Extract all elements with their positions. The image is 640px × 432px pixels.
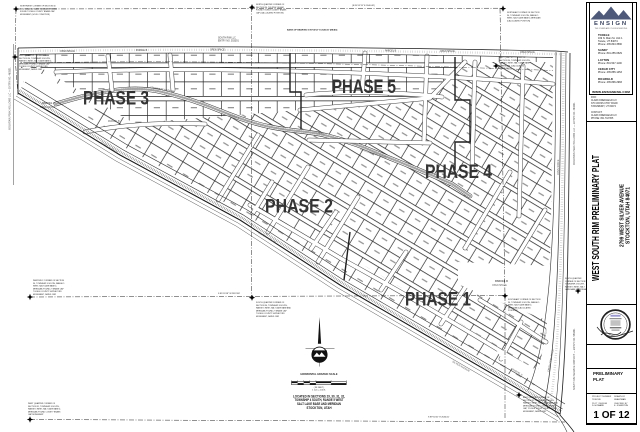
svg-text:FOUND TOOELE COUNTY BRASS: FOUND TOOELE COUNTY BRASS bbox=[256, 9, 287, 12]
svg-text:MOUNTAIN PEAK HOLLOWS LLC — EN: MOUNTAIN PEAK HOLLOWS LLC — ENTRY NO. 46… bbox=[9, 67, 12, 130]
svg-text:SOUTH RIM LLC: SOUTH RIM LLC bbox=[218, 38, 236, 40]
svg-text:MOUNTAIN PEAK HOLLOWS LLC — EN: MOUNTAIN PEAK HOLLOWS LLC — ENTRY NO. 46… bbox=[573, 102, 576, 165]
svg-text:TOOELE COUNTY SURVEYORS: TOOELE COUNTY SURVEYORS bbox=[33, 291, 62, 293]
svg-text:MERIDIAN, FOUND COUNTY BRASS: MERIDIAN, FOUND COUNTY BRASS bbox=[28, 410, 61, 413]
svg-text:NORTHEAST CORNER OF SECTION: NORTHEAST CORNER OF SECTION bbox=[507, 11, 540, 14]
svg-text:SOUTH QUARTER CORNER OF: SOUTH QUARTER CORNER OF bbox=[256, 301, 285, 304]
svg-text:ENTRY NO. 553391: ENTRY NO. 553391 bbox=[218, 40, 239, 42]
svg-text:SILVER AVENUE: SILVER AVENUE bbox=[99, 140, 119, 154]
svg-text:PARCEL B: PARCEL B bbox=[136, 49, 148, 52]
svg-text:TOOELE COUNTY SURVEYORS: TOOELE COUNTY SURVEYORS bbox=[256, 313, 285, 315]
svg-text:MERIDIAN, FOUND 2" BRASS CAP: MERIDIAN, FOUND 2" BRASS CAP bbox=[19, 62, 50, 65]
svg-text:POSITION): POSITION) bbox=[499, 68, 509, 70]
svg-text:MONUMENT, DATED 1982: MONUMENT, DATED 1982 bbox=[523, 410, 546, 413]
svg-text:WEST QUARTER CORNER OF: WEST QUARTER CORNER OF bbox=[28, 402, 56, 405]
svg-text:MONUMENT, DATED 1982: MONUMENT, DATED 1982 bbox=[33, 293, 56, 296]
svg-text:PARCEL B: PARCEL B bbox=[42, 101, 55, 105]
svg-text:SILVER AVENUE: SILVER AVENUE bbox=[452, 359, 472, 373]
svg-text:RANGE 5 WEST, SALT LAKE BASE A: RANGE 5 WEST, SALT LAKE BASE AND bbox=[523, 402, 559, 405]
svg-text:30, TOWNSHIP 4 SOUTH, RANGE 5: 30, TOWNSHIP 4 SOUTH, RANGE 5 bbox=[33, 282, 64, 285]
svg-text:S 89°54'51" E 2640.00': S 89°54'51" E 2640.00' bbox=[428, 417, 450, 419]
svg-text:PHASE 1: PHASE 1 bbox=[405, 289, 471, 311]
svg-text:OPEN SPACE: OPEN SPACE bbox=[557, 159, 560, 175]
svg-text:EAST QUARTER CORNER OF: EAST QUARTER CORNER OF bbox=[499, 56, 526, 59]
svg-text:1 inch = 100 ft.: 1 inch = 100 ft. bbox=[312, 388, 326, 391]
svg-text:MERIDIAN, FOUND 2" BRASS CAP: MERIDIAN, FOUND 2" BRASS CAP bbox=[256, 309, 287, 312]
svg-text:MONUMENT, DATED 1982: MONUMENT, DATED 1982 bbox=[256, 315, 279, 318]
svg-text:(CALCULATED POSITION): (CALCULATED POSITION) bbox=[507, 19, 531, 22]
svg-text:EAST QUARTER CORNER OF: EAST QUARTER CORNER OF bbox=[523, 396, 550, 399]
svg-text:OPEN SPACE: OPEN SPACE bbox=[520, 51, 535, 54]
svg-text:OPEN SPACE: OPEN SPACE bbox=[60, 50, 75, 53]
svg-text:MERIDIAN, FOUND COUNTY BRASS: MERIDIAN, FOUND COUNTY BRASS bbox=[523, 404, 556, 407]
svg-text:OPEN SPACE: OPEN SPACE bbox=[440, 50, 455, 53]
svg-text:MONUMENT, DATED 1982: MONUMENT, DATED 1982 bbox=[19, 68, 42, 71]
svg-text:SOUTH QUARTER: SOUTH QUARTER bbox=[565, 277, 582, 280]
svg-text:CAP (CALCULATED POSITION): CAP (CALCULATED POSITION) bbox=[256, 11, 284, 14]
svg-text:CAP, TOOELE COUNTY SURVEYORS: CAP, TOOELE COUNTY SURVEYORS bbox=[523, 407, 557, 410]
svg-text:HORIZONTAL GRAPHIC SCALE: HORIZONTAL GRAPHIC SCALE bbox=[301, 372, 338, 376]
svg-text:MERIDIAN (CALCULATED: MERIDIAN (CALCULATED bbox=[508, 306, 531, 309]
svg-text:SECTION 30, TOWNSHIP 4 SOUTH,: SECTION 30, TOWNSHIP 4 SOUTH, bbox=[499, 60, 531, 62]
svg-text:OPEN SPACE: OPEN SPACE bbox=[210, 49, 225, 52]
svg-text:TOWNSHIP 4 SOUTH,: TOWNSHIP 4 SOUTH, bbox=[565, 284, 585, 286]
svg-text:30, TOWNSHIP 4 SOUTH, RANGE 5: 30, TOWNSHIP 4 SOUTH, RANGE 5 bbox=[508, 301, 539, 304]
svg-text:CREEK OPEN SPACE: CREEK OPEN SPACE bbox=[547, 348, 555, 372]
svg-text:(S 89°55'13" E 2640.48'): (S 89°55'13" E 2640.48') bbox=[352, 5, 375, 7]
svg-text:SECTION 30, TOWNSHIP 4 SOUTH,: SECTION 30, TOWNSHIP 4 SOUTH, bbox=[19, 58, 51, 60]
svg-text:30, TOWNSHIP 4 SOUTH, RANGE 5: 30, TOWNSHIP 4 SOUTH, RANGE 5 bbox=[507, 14, 538, 17]
svg-text:WEST, SALT LAKE BASE &: WEST, SALT LAKE BASE & bbox=[33, 285, 57, 288]
svg-text:PHASE 2: PHASE 2 bbox=[265, 196, 333, 218]
svg-text:POSITION): POSITION) bbox=[508, 310, 518, 312]
svg-text:SECTION 31, TOWNSHIP 4 SOUTH,: SECTION 31, TOWNSHIP 4 SOUTH, bbox=[28, 406, 60, 408]
svg-text:SOUTHEAST CORNER OF SECTION: SOUTHEAST CORNER OF SECTION bbox=[508, 298, 541, 301]
svg-text:CAP MONUMENT: CAP MONUMENT bbox=[28, 413, 44, 416]
svg-text:TOOELE COUNTY SURVEYORS: TOOELE COUNTY SURVEYORS bbox=[19, 66, 48, 68]
svg-text:NORTH QUARTER CORNER OF: NORTH QUARTER CORNER OF bbox=[256, 3, 285, 6]
svg-text:WEST, SALT LAKE BASE & MERIDIA: WEST, SALT LAKE BASE & MERIDIAN bbox=[507, 17, 541, 20]
svg-text:RANGE 5 WEST, SALT LAKE BASE &: RANGE 5 WEST, SALT LAKE BASE & bbox=[28, 408, 61, 411]
svg-text:S 89°20'18" W 2837.88': S 89°20'18" W 2837.88' bbox=[218, 293, 240, 295]
svg-text:NORTHWEST CORNER OF SECTION 30: NORTHWEST CORNER OF SECTION 30 bbox=[20, 6, 56, 8]
svg-text:LAKE BASE & MERIDIAN: LAKE BASE & MERIDIAN bbox=[565, 288, 588, 291]
svg-text:SECTION 30, TOWNSHIP 4 SOUTH,: SECTION 30, TOWNSHIP 4 SOUTH, bbox=[256, 305, 288, 307]
svg-text:WEST, SALT LAKE BASE &: WEST, SALT LAKE BASE & bbox=[508, 304, 532, 307]
svg-text:WESTERLY CORNER OF SECTION: WESTERLY CORNER OF SECTION bbox=[33, 280, 65, 282]
svg-text:PHASE 3: PHASE 3 bbox=[83, 88, 149, 110]
svg-text:PARCEL D: PARCEL D bbox=[495, 279, 508, 283]
svg-text:& MERIDIAN, (CALCULATED: & MERIDIAN, (CALCULATED bbox=[499, 64, 525, 67]
svg-text:SOUTH RIM SERVICE DISTRICT — E: SOUTH RIM SERVICE DISTRICT — ENTRY NO. 5… bbox=[573, 328, 576, 390]
svg-text:PARCEL B: PARCEL B bbox=[108, 120, 120, 123]
svg-text:T4S, R5W, SALT LAKE BASE & MER: T4S, R5W, SALT LAKE BASE & MERIDIAN bbox=[20, 7, 57, 10]
svg-text:FOUND TOOELE COUNTY BRASS CAP: FOUND TOOELE COUNTY BRASS CAP bbox=[20, 10, 55, 13]
svg-text:PHASE 5: PHASE 5 bbox=[332, 76, 396, 98]
svg-text:MERIDIAN, FOUND 2" BRASS CAP: MERIDIAN, FOUND 2" BRASS CAP bbox=[33, 287, 64, 290]
svg-text:RANGE 5 WEST, SALT LAKE BASE: RANGE 5 WEST, SALT LAKE BASE bbox=[499, 62, 530, 65]
svg-text:RANGE 5 WEST, SALT LAKE BASE A: RANGE 5 WEST, SALT LAKE BASE AND bbox=[256, 307, 292, 310]
svg-text:STOCKTON, UTAH 84071: STOCKTON, UTAH 84071 bbox=[626, 187, 632, 244]
svg-text:SECTION 31, TOWNSHIP 4 SOUTH,: SECTION 31, TOWNSHIP 4 SOUTH, bbox=[523, 400, 555, 402]
svg-text:RANGE 5 WEST, SALT LAKE BASE &: RANGE 5 WEST, SALT LAKE BASE & bbox=[19, 60, 52, 63]
svg-text:PARCEL B: PARCEL B bbox=[385, 50, 397, 53]
svg-text:RANGE 5 WEST, SALT: RANGE 5 WEST, SALT bbox=[565, 285, 586, 288]
svg-text:WEST SOUTH RIM PRELIMINARY PLA: WEST SOUTH RIM PRELIMINARY PLAT bbox=[590, 155, 602, 281]
svg-text:WEST QUARTER CORNER OF: WEST QUARTER CORNER OF bbox=[19, 54, 47, 57]
svg-text:BASIS OF BEARING S 89°55'02": BASIS OF BEARING S 89°55'02" E 2640.69' … bbox=[287, 29, 338, 32]
svg-text:STOCKTON, UTAH: STOCKTON, UTAH bbox=[307, 406, 332, 410]
svg-text:MONUMENT (GOOD CONDITION): MONUMENT (GOOD CONDITION) bbox=[20, 14, 50, 16]
svg-text:SECTION 30, T4S R5W, SLB&M: SECTION 30, T4S R5W, SLB&M bbox=[256, 7, 284, 9]
svg-text:PHASE 4: PHASE 4 bbox=[425, 161, 492, 183]
